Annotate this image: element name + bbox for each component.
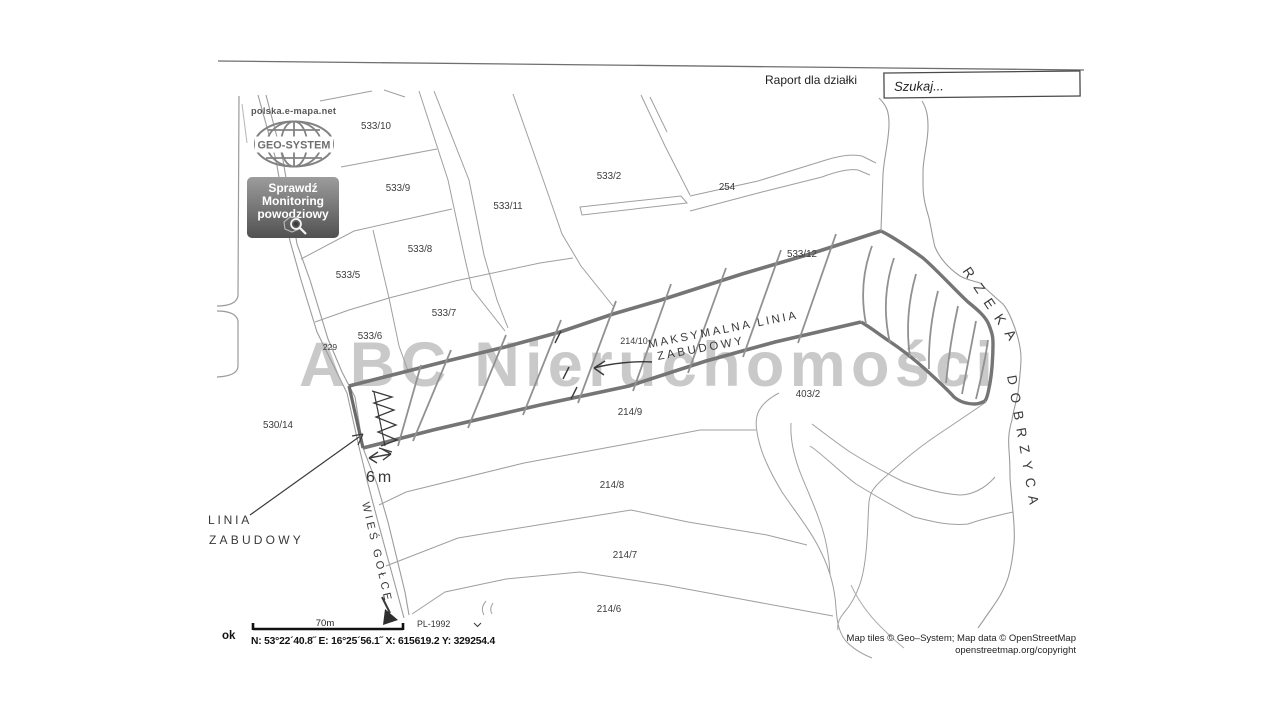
svg-text:DOBRZYCA: DOBRZYCA <box>1004 374 1043 514</box>
svg-text:533/7: 533/7 <box>432 308 457 319</box>
svg-text:533/8: 533/8 <box>408 244 433 255</box>
svg-text:214/9: 214/9 <box>618 407 643 418</box>
svg-text:LINIA: LINIA <box>208 513 252 527</box>
svg-text:70m: 70m <box>316 618 335 629</box>
svg-text:Map tiles © Geo–System; Map da: Map tiles © Geo–System; Map data © OpenS… <box>847 633 1076 644</box>
svg-text:254: 254 <box>719 182 736 193</box>
svg-text:GEO-SYSTEM: GEO-SYSTEM <box>258 140 331 152</box>
svg-text:ZABUDOWY: ZABUDOWY <box>209 533 304 547</box>
svg-text:530/14: 530/14 <box>263 420 294 431</box>
svg-text:214/8: 214/8 <box>600 480 625 491</box>
svg-text:533/6: 533/6 <box>358 331 383 342</box>
svg-text:533/11: 533/11 <box>493 201 522 212</box>
svg-text:ok: ok <box>222 630 236 642</box>
svg-text:533/10: 533/10 <box>361 121 392 132</box>
svg-text:6m: 6m <box>366 469 394 486</box>
svg-text:openstreetmap.org/copyright: openstreetmap.org/copyright <box>955 645 1076 656</box>
svg-text:214/6: 214/6 <box>597 604 622 615</box>
svg-text:533/9: 533/9 <box>386 183 411 194</box>
svg-text:N: 53°22´40.8˝ E: 16°25´56.1˝: N: 53°22´40.8˝ E: 16°25´56.1˝ X: 615619.… <box>251 636 495 647</box>
svg-text:533/12: 533/12 <box>787 249 817 260</box>
svg-text:Monitoring: Monitoring <box>262 194 324 208</box>
svg-text:Raport dla działki: Raport dla działki <box>765 73 857 87</box>
svg-text:214/10: 214/10 <box>620 336 648 346</box>
svg-text:214/7: 214/7 <box>613 550 638 561</box>
svg-text:PL-1992: PL-1992 <box>417 619 450 629</box>
svg-text:polska.e-mapa.net: polska.e-mapa.net <box>251 106 336 116</box>
svg-text:533/5: 533/5 <box>336 270 361 281</box>
svg-text:229: 229 <box>323 342 337 352</box>
svg-text:403/2: 403/2 <box>796 389 821 400</box>
svg-text:Szukaj...: Szukaj... <box>894 78 944 94</box>
svg-text:533/2: 533/2 <box>597 171 622 182</box>
svg-text:Sprawdź: Sprawdź <box>268 181 317 195</box>
